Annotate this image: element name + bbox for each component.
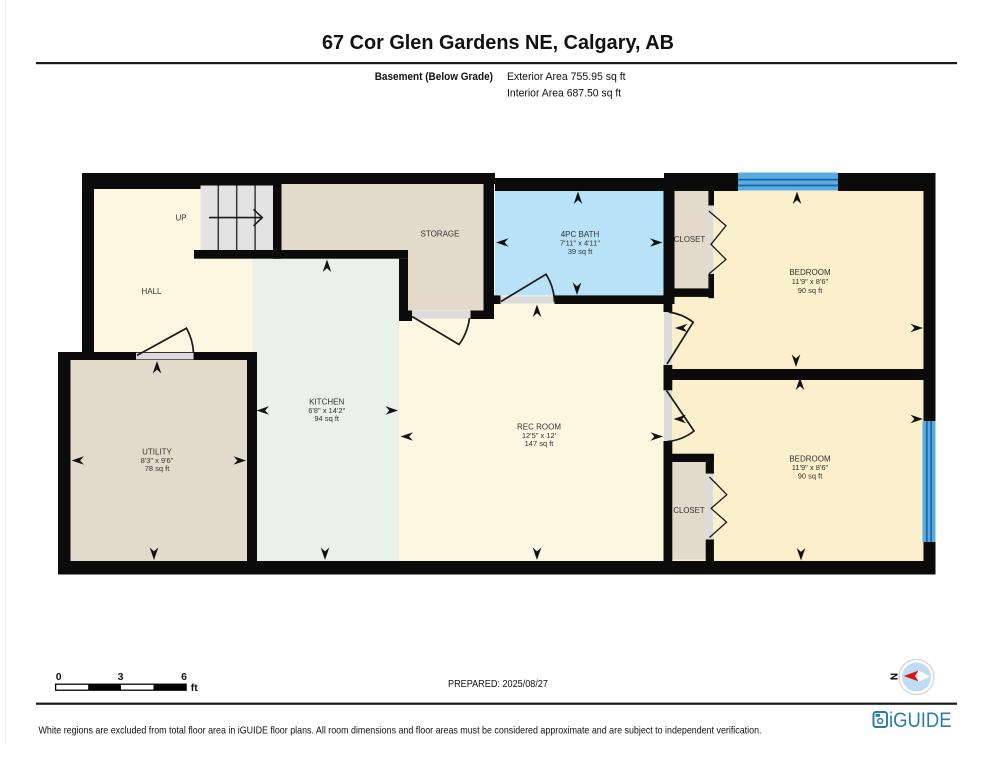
svg-text:N: N [890, 673, 901, 680]
svg-text:6: 6 [181, 671, 187, 683]
svg-text:iGUIDE: iGUIDE [889, 708, 952, 732]
svg-text:3: 3 [118, 671, 124, 683]
svg-text:Interior Area 687.50 sq ft: Interior Area 687.50 sq ft [507, 88, 621, 100]
svg-text:147 sq ft: 147 sq ft [525, 439, 555, 448]
svg-text:STORAGE: STORAGE [421, 230, 460, 239]
svg-text:Exterior Area 755.95 sq ft: Exterior Area 755.95 sq ft [507, 71, 626, 83]
svg-text:67 Cor Glen Gardens NE, Calgar: 67 Cor Glen Gardens NE, Calgary, AB [322, 32, 674, 54]
svg-text:ft: ft [191, 682, 198, 694]
svg-text:90 sq ft: 90 sq ft [798, 471, 824, 480]
svg-text:94 sq ft: 94 sq ft [314, 414, 340, 423]
svg-text:UP: UP [175, 214, 186, 223]
svg-text:PREPARED: 2025/08/27: PREPARED: 2025/08/27 [448, 679, 548, 690]
svg-text:CLOSET: CLOSET [673, 506, 704, 515]
svg-text:90 sq ft: 90 sq ft [798, 286, 824, 295]
svg-text:0: 0 [56, 671, 62, 683]
svg-text:CLOSET: CLOSET [674, 235, 705, 244]
svg-text:HALL: HALL [141, 287, 162, 296]
svg-text:39 sq ft: 39 sq ft [568, 247, 594, 256]
svg-text:Basement (Below Grade): Basement (Below Grade) [375, 71, 493, 83]
svg-text:78 sq ft: 78 sq ft [145, 464, 171, 473]
svg-text:BEDROOM: BEDROOM [789, 268, 831, 277]
svg-text:White regions are excluded fro: White regions are excluded from total fl… [39, 726, 762, 737]
